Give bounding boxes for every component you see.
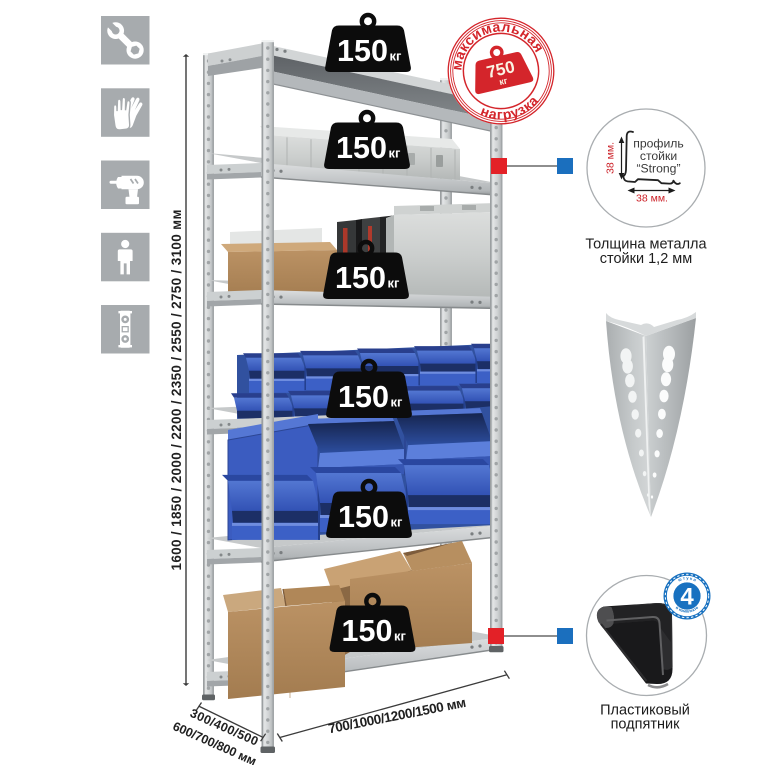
svg-text:“Strong”: “Strong” — [636, 162, 680, 176]
svg-text:38 мм.: 38 мм. — [605, 142, 617, 174]
svg-text:150: 150 — [342, 614, 393, 648]
svg-text:подпятник: подпятник — [611, 717, 681, 733]
svg-text:150: 150 — [335, 261, 386, 295]
svg-text:1600 / 1850 / 2000 / 2200 / 23: 1600 / 1850 / 2000 / 2200 / 2350 / 2550 … — [169, 210, 184, 571]
svg-text:150: 150 — [338, 500, 389, 534]
svg-text:150: 150 — [336, 131, 387, 165]
svg-text:кг: кг — [391, 515, 404, 530]
svg-text:кг: кг — [390, 49, 403, 64]
svg-text:150: 150 — [338, 380, 389, 414]
svg-text:кг: кг — [389, 146, 402, 161]
svg-text:38 мм.: 38 мм. — [636, 193, 668, 205]
svg-text:150: 150 — [337, 34, 388, 68]
svg-text:стойки 1,2 мм: стойки 1,2 мм — [600, 251, 693, 267]
svg-text:кг: кг — [394, 629, 407, 644]
svg-text:4: 4 — [680, 584, 694, 611]
svg-text:кг: кг — [388, 276, 401, 291]
svg-text:кг: кг — [391, 395, 404, 410]
